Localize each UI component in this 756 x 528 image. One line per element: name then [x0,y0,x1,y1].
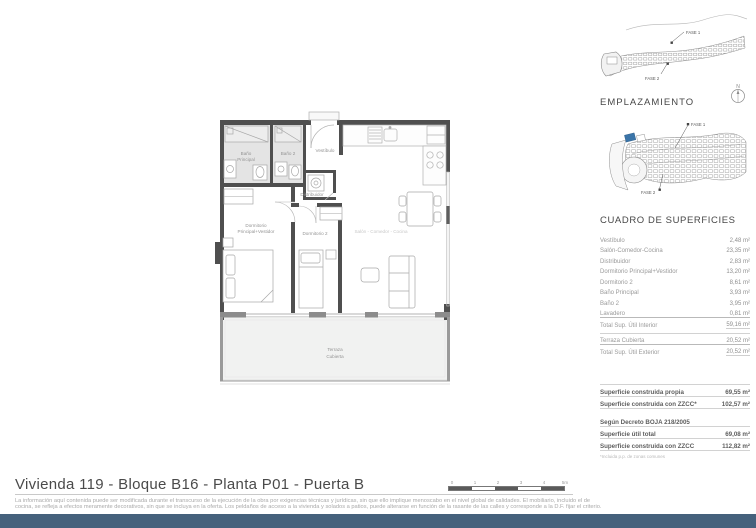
table-row: Baño 2 3,95 m² [600,296,750,307]
terrace-sliding-doors [220,312,450,318]
svg-text:Principal+Vestidor: Principal+Vestidor [238,229,275,234]
total-interior-row: Total Sup. Útil Interior 59,16 m² [600,317,750,329]
fase1-marker: FASE 1 [671,30,701,44]
zzcc-footnote: *Incluida p.p. de zonas comunes [600,451,750,459]
construida-propia-row: Superficie construida propia 69,55 m² [600,384,750,396]
fase1-label: FASE 1 [686,30,701,35]
label-bano2: Baño 2 [281,151,296,156]
label-salon: Salón - Comedor - Cocina [354,229,408,234]
master-bed [223,189,273,302]
dining-table [399,192,441,226]
label-distribuidor: Distribuidor [300,192,324,197]
label-dormitorio2: Dormitorio 2 [302,231,327,236]
fase1-label: FASE 1 [691,122,706,127]
label-vestibulo: Vestíbulo [316,148,335,153]
bottom-color-bar [0,514,756,528]
svg-text:N: N [736,84,740,90]
table-row: Dormitorio Principal+Vestidor 13,20 m² [600,265,750,276]
fase2-label: FASE 2 [641,190,656,195]
highlighted-building [624,133,635,142]
footer-divider [15,494,573,495]
total-exterior-row: Total Sup. Útil Exterior 20,52 m² [600,344,750,356]
label-bano-principal: Baño [241,151,252,156]
building-cluster [604,36,745,76]
svg-text:Principal: Principal [237,157,255,162]
window-glazing [447,172,449,306]
decreto-construida-row: Superficie construida con ZZCC 112,82 m² [600,438,750,451]
table-row: Baño Principal 3,93 m² [600,286,750,297]
table-row: Dormitorio 2 8,61 m² [600,275,750,286]
row-label: Vestíbulo [600,238,625,244]
coffee-table [361,268,379,282]
decreto-util-row: Superficie útil total 69,08 m² [600,426,750,438]
scale-bar-segments [449,487,564,490]
row-value: 2,48 m² [730,238,750,244]
table-row: Vestíbulo 2,48 m² [600,233,750,244]
sofa [389,256,415,308]
floorplan-drawing: Baño Principal Baño 2 Vestíbulo Distribu… [213,110,457,402]
label-dormitorio-principal: Dormitorio [245,223,267,228]
terraza-row: Terraza Cubierta 20,52 m² [600,333,750,345]
label-terraza: Terraza [327,347,343,352]
table-row: Distribuidor 2,83 m² [600,254,750,265]
table-row: Lavadero 0,81 m² [600,307,750,318]
construida-zzcc-row: Superficie construida con ZZCC* 102,57 m… [600,396,750,409]
fase2-label: FASE 2 [645,76,660,81]
kitchen-counter [343,125,446,185]
coast-line [626,15,747,30]
table-row: Salón-Comedor-Cocina 23,35 m² [600,244,750,255]
page-title: Vivienda 119 - Bloque B16 - Planta P01 -… [15,476,364,493]
door-arc [299,206,316,223]
superficies-table: Vestíbulo 2,48 m² Salón-Comedor-Cocina 2… [600,233,750,459]
superficies-title: CUADRO DE SUPERFICIES [600,215,750,231]
decreto-title: Según Decreto BOJA 218/2005 [600,416,750,426]
fase2-marker: FASE 2 [645,63,669,82]
legal-disclaimer: La información aquí contenida puede ser … [15,498,745,511]
entry-door [309,112,339,148]
svg-text:Cubierta: Cubierta [326,354,344,359]
scale-bar: 0 1 2 3 4 5m [449,480,575,492]
site-plan-drawing: FASE 1 FASE 2 [598,114,750,208]
bedroom2-bed [299,207,342,308]
emplazamiento-title: EMPLAZAMIENTO [600,97,750,113]
